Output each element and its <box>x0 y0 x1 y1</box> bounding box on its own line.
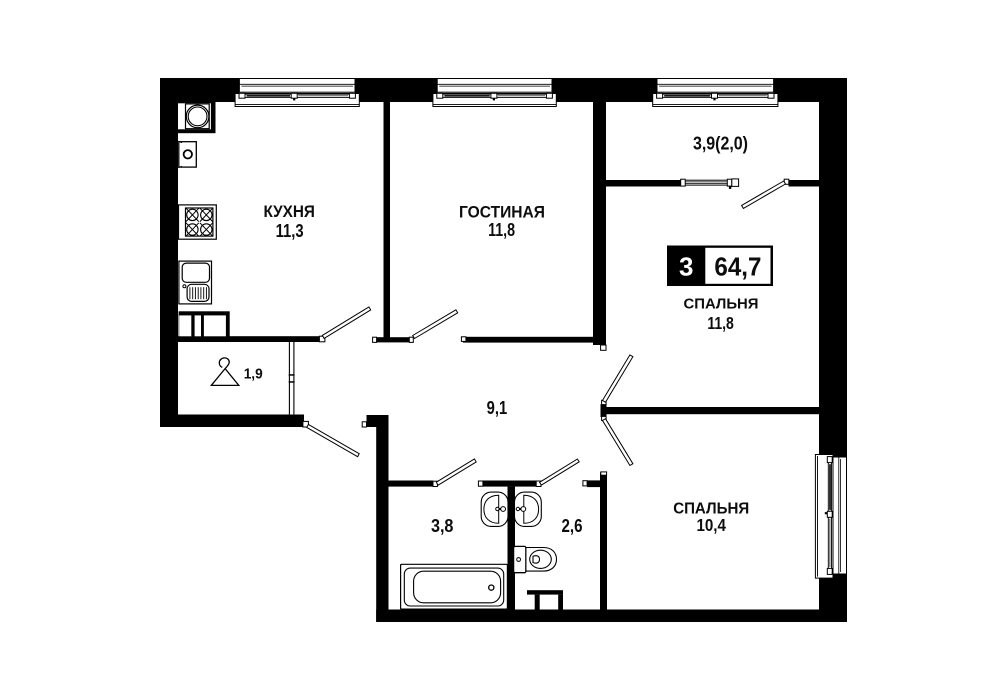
svg-text:11,3: 11,3 <box>276 220 304 241</box>
svg-text:3,8: 3,8 <box>431 515 454 536</box>
svg-text:3: 3 <box>679 252 693 282</box>
svg-text:3,9(2,0): 3,9(2,0) <box>693 133 748 154</box>
svg-text:10,4: 10,4 <box>696 515 726 535</box>
svg-text:11,8: 11,8 <box>488 220 515 240</box>
svg-text:9,1: 9,1 <box>487 397 508 418</box>
svg-text:11,8: 11,8 <box>707 313 734 333</box>
svg-text:64,7: 64,7 <box>714 252 761 282</box>
svg-text:2,6: 2,6 <box>562 515 583 536</box>
svg-text:КУХНЯ: КУХНЯ <box>263 202 315 221</box>
svg-text:ГОСТИНАЯ: ГОСТИНАЯ <box>459 203 545 221</box>
svg-text:СПАЛЬНЯ: СПАЛЬНЯ <box>684 297 759 313</box>
svg-text:1,9: 1,9 <box>244 366 263 383</box>
